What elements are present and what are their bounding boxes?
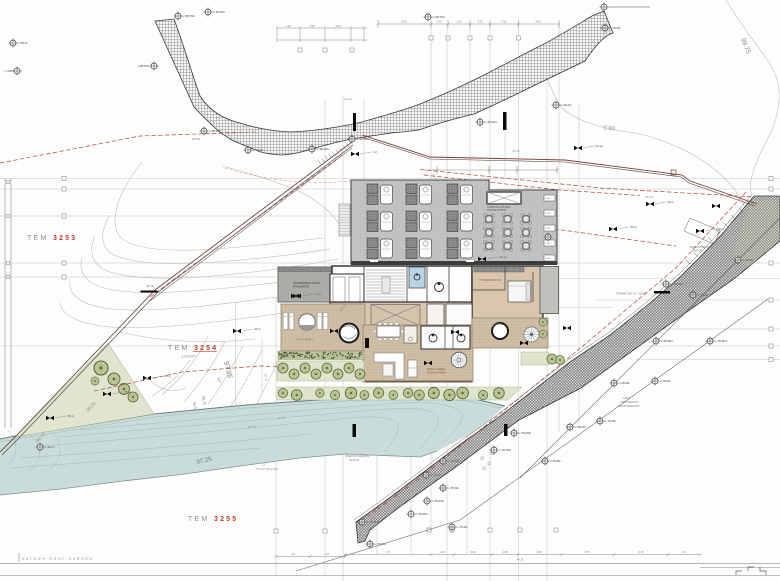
svg-text:5.60: 5.60 bbox=[535, 20, 541, 24]
svg-text:2.55: 2.55 bbox=[309, 24, 315, 28]
svg-text:ΕΠΙ ΔΩΜΑΤΟΣ: ΕΠΙ ΔΩΜΑΤΟΣ bbox=[293, 286, 310, 289]
svg-text:FLAT: FLAT bbox=[546, 212, 552, 215]
svg-text:4.15: 4.15 bbox=[638, 550, 644, 554]
svg-text:1.95: 1.95 bbox=[502, 550, 508, 554]
svg-text:2.90: 2.90 bbox=[470, 550, 476, 554]
svg-text:(9t.ba): (9t.ba) bbox=[278, 415, 286, 420]
svg-text:FLAT: FLAT bbox=[546, 242, 552, 245]
svg-text:(98.a): (98.a) bbox=[667, 200, 674, 204]
svg-text:+ 98.750: + 98.750 bbox=[213, 10, 225, 14]
svg-text:(98.1): (98.1) bbox=[164, 374, 171, 378]
svg-text:44.15: 44.15 bbox=[517, 558, 524, 562]
svg-text:ΟΔΟΣΤΡΩΜΑΤΟΣ: ΟΔΟΣΤΡΩΜΑΤΟΣ bbox=[618, 404, 640, 408]
svg-text:2.6: 2.6 bbox=[325, 552, 329, 556]
svg-text:+ 78.44P: + 78.44P bbox=[432, 499, 444, 503]
svg-text:(98.a): (98.a) bbox=[717, 227, 724, 231]
svg-text:4.15: 4.15 bbox=[501, 20, 507, 24]
svg-text:99.5: 99.5 bbox=[603, 123, 616, 130]
svg-text:2.60: 2.60 bbox=[335, 24, 341, 28]
svg-text:7.5: 7.5 bbox=[386, 550, 390, 554]
svg-text:ΥΠΝΟΔΩΜΑΤΙΟ 101: ΥΠΝΟΔΩΜΑΤΙΟ 101 bbox=[479, 279, 502, 282]
svg-text:+ 98.09a: + 98.09a bbox=[317, 147, 329, 151]
svg-text:FLAT: FLAT bbox=[546, 227, 552, 230]
svg-text:(98.a): (98.a) bbox=[254, 327, 261, 331]
svg-text:5.75: 5.75 bbox=[584, 550, 590, 554]
svg-text:+ 79.45: + 79.45 bbox=[610, 26, 620, 30]
svg-text:+ 98.675: + 98.675 bbox=[137, 64, 149, 68]
svg-text:+ 78.45E: + 78.45E bbox=[519, 431, 531, 435]
svg-text:ΦΡΕΑΤΙΟ CHAIRON: ΦΡΕΑΤΙΟ CHAIRON bbox=[345, 454, 369, 458]
svg-text:+ 98.4E: + 98.4E bbox=[619, 381, 629, 385]
svg-text:+ 98.700: + 98.700 bbox=[433, 15, 445, 19]
svg-text:FLAT: FLAT bbox=[546, 257, 552, 260]
svg-text:3254: 3254 bbox=[194, 345, 218, 352]
svg-text:4.30: 4.30 bbox=[401, 20, 407, 24]
svg-text:ΥΔΑΤΩΝ: ΥΔΑΤΩΝ bbox=[692, 249, 702, 253]
svg-text:3253: 3253 bbox=[53, 235, 77, 242]
svg-text:ΞΥΛΙΝΟ ΔΑΠΕΔΟ: ΞΥΛΙΝΟ ΔΑΠΕΔΟ bbox=[296, 338, 314, 341]
svg-text:2.45: 2.45 bbox=[436, 20, 442, 24]
svg-text:2.6: 2.6 bbox=[682, 550, 686, 554]
svg-text:+ 78.3E7: + 78.3E7 bbox=[715, 339, 727, 343]
svg-text:1.10: 1.10 bbox=[439, 550, 445, 554]
svg-text:ΤΕΜ: ΤΕΜ bbox=[168, 345, 189, 352]
svg-text:(99.45): (99.45) bbox=[524, 187, 532, 191]
svg-text:+ 98.2E: + 98.2E bbox=[575, 425, 585, 429]
svg-text:(99.43): (99.43) bbox=[645, 195, 653, 199]
svg-text:3.25: 3.25 bbox=[536, 550, 542, 554]
svg-text:(94.63): (94.63) bbox=[192, 137, 200, 141]
svg-text:+ 98.0E7: + 98.0E7 bbox=[661, 339, 673, 343]
svg-text:+ 78.7E3: + 78.7E3 bbox=[499, 448, 511, 452]
svg-text:+ 98.5: + 98.5 bbox=[6, 69, 15, 73]
svg-text:(99.45): (99.45) bbox=[512, 149, 520, 153]
svg-text:(97.72): (97.72) bbox=[146, 284, 154, 288]
svg-text:+ 98.2: + 98.2 bbox=[45, 445, 54, 449]
svg-text:+ 78.4E: + 78.4E bbox=[448, 486, 458, 490]
svg-text:+ 98.G: + 98.G bbox=[18, 41, 28, 45]
svg-text:4.6: 4.6 bbox=[291, 552, 295, 556]
svg-text:2.40: 2.40 bbox=[285, 24, 291, 28]
svg-text:FLAT: FLAT bbox=[546, 197, 552, 200]
svg-text:+ 78.02: + 78.02 bbox=[457, 525, 467, 529]
svg-text:(98.a): (98.a) bbox=[67, 414, 74, 418]
svg-text:+ 98.0aa: + 98.0aa bbox=[485, 120, 497, 124]
svg-text:ΤΕΜ: ΤΕΜ bbox=[27, 235, 48, 242]
svg-text:+ 98.5E: + 98.5E bbox=[743, 258, 753, 262]
svg-text:ΓΡΑΜΜΗ ΟΨΗ Χ.Ο. ΤΟΙΧΙΟ: ΓΡΑΜΜΗ ΟΨΗ Χ.Ο. ΤΟΙΧΙΟ bbox=[616, 293, 647, 296]
svg-text:(98.1): (98.1) bbox=[124, 390, 131, 394]
svg-text:+ 78.4F: + 78.4F bbox=[431, 473, 441, 477]
svg-text:+ 98.094: + 98.094 bbox=[209, 129, 221, 133]
svg-text:ΥΔΑΤΟΡΕΜΑ: ΥΔΑΤΟΡΕΜΑ bbox=[256, 467, 279, 471]
svg-text:+ 78.3G: + 78.3G bbox=[375, 542, 386, 546]
svg-text:3.10: 3.10 bbox=[456, 20, 462, 24]
svg-text:+ 78.5E4: + 78.5E4 bbox=[367, 520, 379, 524]
svg-text:+ 78.7E9: + 78.7E9 bbox=[448, 459, 460, 463]
svg-text:(99.1a): (99.1a) bbox=[595, 144, 603, 148]
svg-text:ΥΔΑΤΩΝ: ΥΔΑΤΩΝ bbox=[349, 458, 359, 462]
svg-text:(1.2): (1.2) bbox=[372, 150, 377, 154]
svg-text:ΚΟΙΝΗΣ ΧΡΗΣΗΣ: ΚΟΙΝΗΣ ΧΡΗΣΗΣ bbox=[487, 209, 507, 212]
svg-text:(99.aa): (99.aa) bbox=[344, 97, 352, 101]
svg-text:+ 78.45: + 78.45 bbox=[660, 379, 670, 383]
svg-text:+ 98.760: + 98.760 bbox=[183, 14, 195, 18]
svg-text:ΤΕΜ: ΤΕΜ bbox=[188, 516, 209, 523]
svg-text:ΚΑΤΟΨΗ ROOF GARDEN: ΚΑΤΟΨΗ ROOF GARDEN bbox=[22, 557, 94, 561]
svg-text:+ 78.4B: + 78.4B bbox=[605, 419, 615, 423]
svg-text:ΥΦΙΣΤΑΜΕΝΟΥ: ΥΦΙΣΤΑΜΕΝΟΥ bbox=[620, 400, 639, 404]
svg-text:+ 99.42: + 99.42 bbox=[561, 103, 571, 107]
svg-text:ΚΟΙΝΗΣ ΧΡΗΣΗΣ: ΚΟΙΝΗΣ ΧΡΗΣΗΣ bbox=[427, 372, 447, 375]
svg-text:2.70: 2.70 bbox=[477, 20, 483, 24]
svg-text:+ 98.5aa: + 98.5aa bbox=[357, 137, 369, 141]
svg-text:+1.0m: +1.0m bbox=[314, 292, 321, 296]
svg-text:ΦΡΕΑΤΙΟ ΕΙΣΟΔΟΥ: ΦΡΕΑΤΙΟ ΕΙΣΟΔΟΥ bbox=[690, 245, 714, 249]
svg-text:(98.a): (98.a) bbox=[630, 225, 637, 229]
svg-text:+ 78.B4: + 78.B4 bbox=[550, 459, 561, 463]
svg-text:+ 98.2E0: + 98.2E0 bbox=[671, 282, 683, 286]
svg-text:+ 98.5a: + 98.5a bbox=[253, 148, 263, 152]
svg-text:(98.aa): (98.aa) bbox=[499, 255, 507, 259]
svg-text:ΑΚΡΗ: ΑΚΡΗ bbox=[623, 396, 630, 400]
svg-text:3255: 3255 bbox=[214, 516, 238, 523]
svg-text:+ 98.45: + 98.45 bbox=[698, 293, 708, 297]
svg-text:1,012m²: 1,012m² bbox=[181, 354, 196, 359]
svg-text:+ 78.35A: + 78.35A bbox=[416, 512, 428, 516]
